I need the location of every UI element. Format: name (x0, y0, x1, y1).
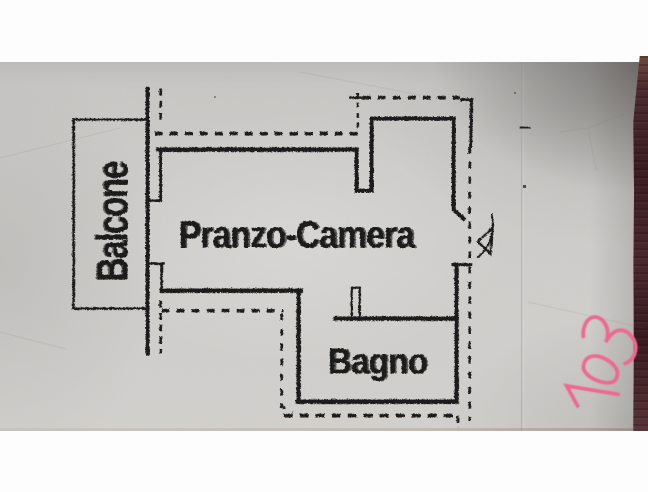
svg-text:Balcone: Balcone (87, 161, 135, 281)
svg-text:Bagno: Bagno (329, 342, 428, 381)
svg-text:Pranzo-Camera: Pranzo-Camera (180, 213, 417, 255)
